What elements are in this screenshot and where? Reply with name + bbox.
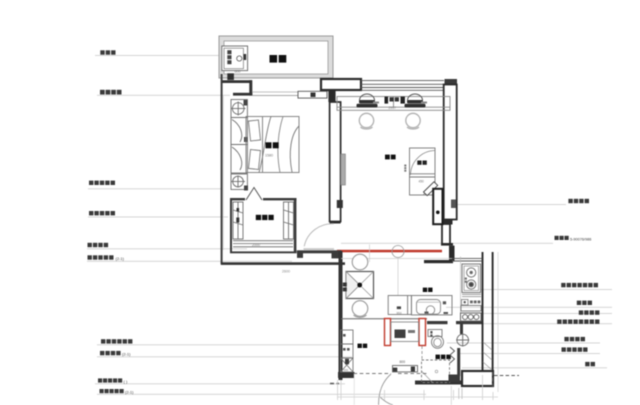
svg-text:800: 800	[400, 360, 406, 364]
svg-text:600: 600	[235, 70, 241, 74]
svg-text:600: 600	[344, 368, 349, 372]
svg-text:2600: 2600	[282, 270, 290, 274]
svg-text:(2-1): (2-1)	[125, 389, 134, 394]
svg-text:5-90076/986: 5-90076/986	[570, 237, 591, 241]
svg-text:950: 950	[397, 311, 402, 315]
svg-text:1580: 1580	[265, 154, 273, 158]
svg-text:(2-1): (2-1)	[116, 256, 125, 261]
svg-text:( ): ( )	[124, 379, 128, 384]
svg-text:450: 450	[419, 180, 425, 184]
svg-text:2997: 2997	[389, 106, 397, 110]
svg-text:2000: 2000	[252, 243, 260, 247]
svg-text:(2-1): (2-1)	[122, 352, 131, 357]
